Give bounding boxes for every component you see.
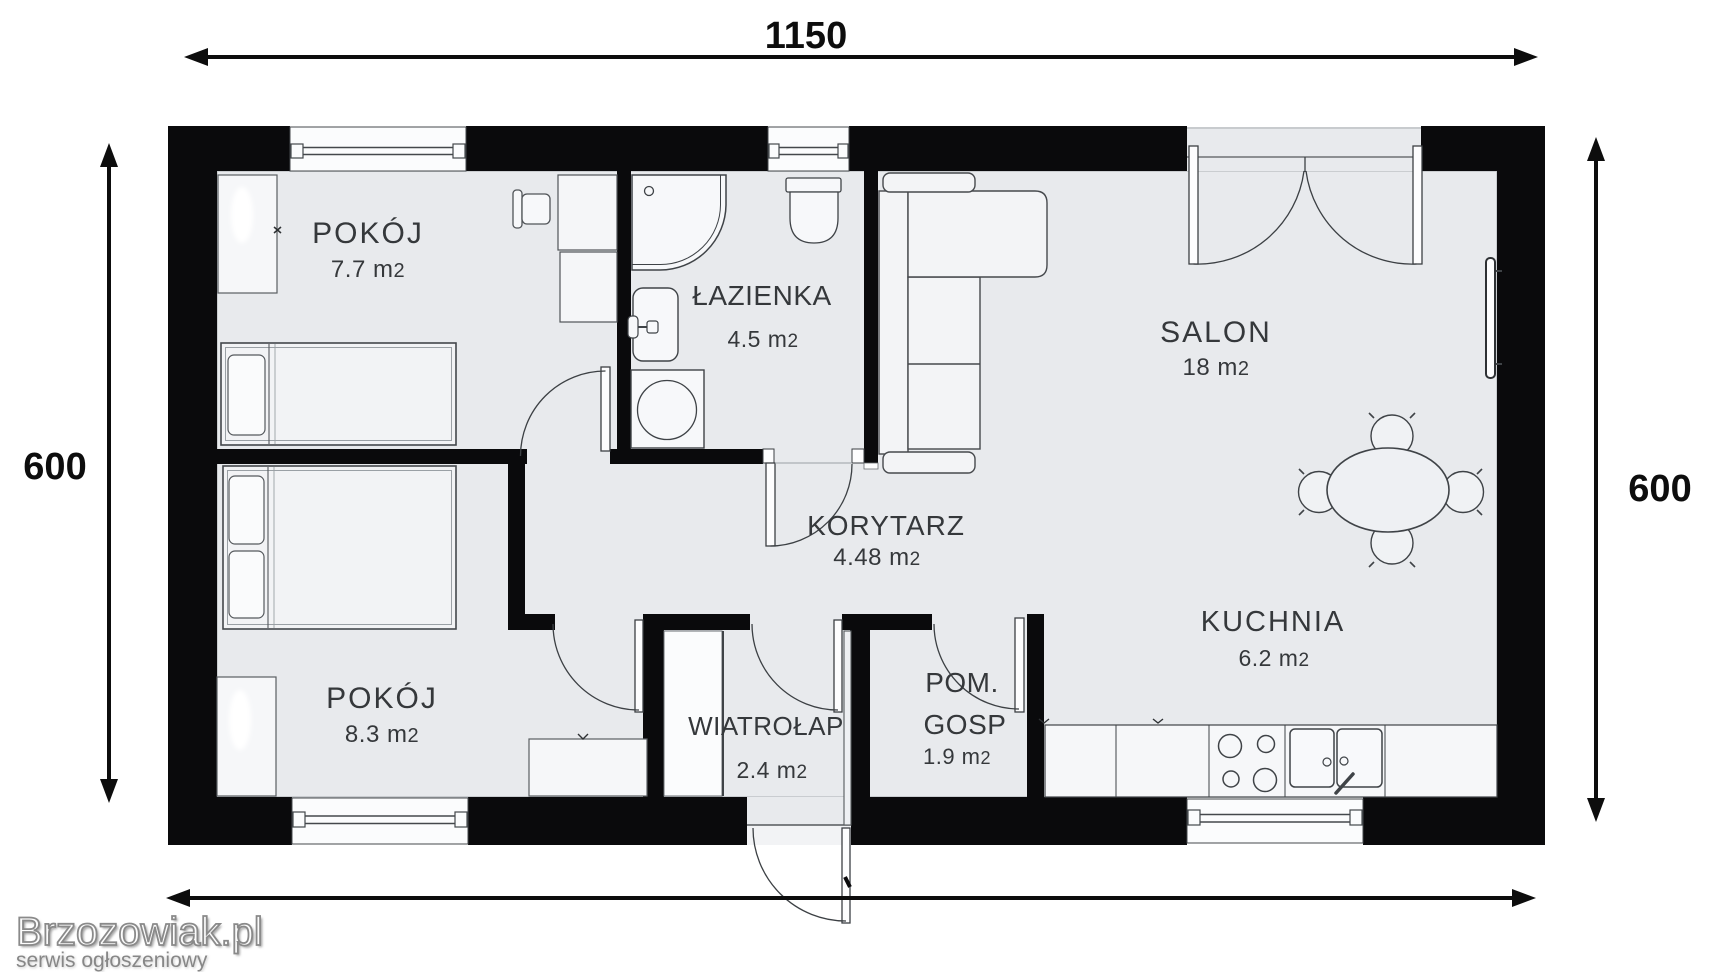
svg-text:1150: 1150 (765, 15, 847, 57)
svg-text:600: 600 (1628, 468, 1691, 510)
svg-text:4.48 m2: 4.48 m2 (833, 544, 920, 571)
svg-text:POKÓJ: POKÓJ (326, 682, 438, 715)
svg-text:KUCHNIA: KUCHNIA (1201, 606, 1346, 638)
svg-text:POKÓJ: POKÓJ (312, 217, 424, 250)
svg-text:KORYTARZ: KORYTARZ (807, 510, 965, 541)
svg-text:7.7 m2: 7.7 m2 (331, 256, 405, 283)
svg-text:600: 600 (23, 446, 86, 488)
svg-text:POM.: POM. (925, 667, 999, 698)
svg-text:Brzozowiak.pl: Brzozowiak.pl (16, 910, 263, 954)
svg-text:1.9 m2: 1.9 m2 (923, 744, 991, 769)
svg-text:SALON: SALON (1160, 316, 1272, 349)
svg-text:8.3 m2: 8.3 m2 (345, 721, 419, 748)
svg-text:18 m2: 18 m2 (1183, 354, 1250, 381)
svg-text:ŁAZIENKA: ŁAZIENKA (692, 280, 831, 311)
svg-text:GOSP: GOSP (924, 709, 1007, 740)
svg-text:WIATROŁAP: WIATROŁAP (688, 711, 844, 741)
svg-text:serwis ogłoszeniowy: serwis ogłoszeniowy (16, 949, 208, 972)
